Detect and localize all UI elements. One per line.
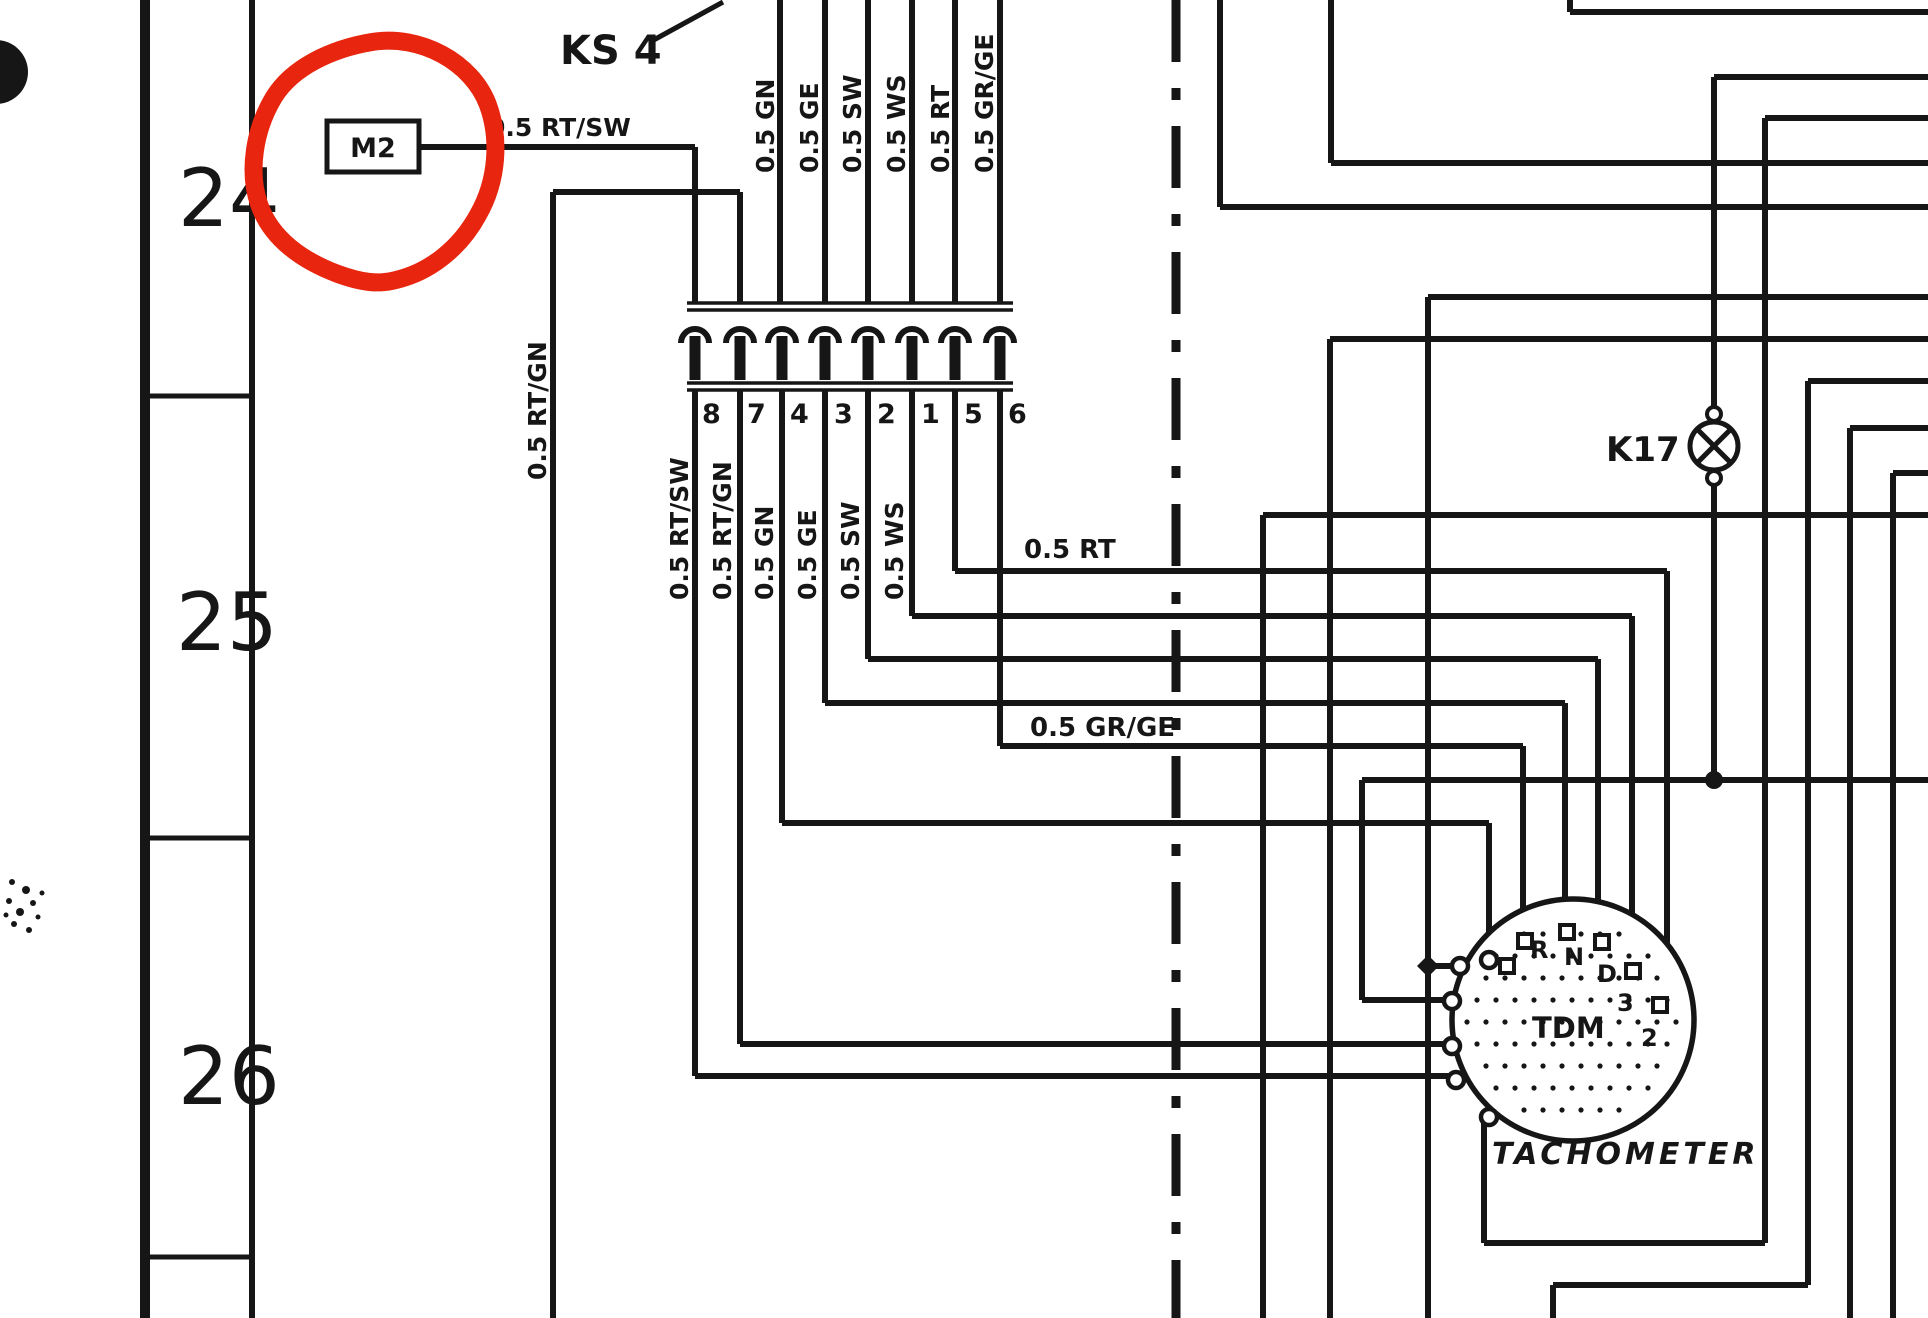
diagram-label-0-5-ws: 0.5 WS [880, 501, 909, 600]
tach-left-pin-4 [1481, 1109, 1497, 1125]
halftone-dot-78 [1521, 1107, 1526, 1112]
halftone-dot-77 [1645, 1085, 1650, 1090]
diagram-label-8: 8 [702, 399, 721, 430]
halftone-dot-74 [1588, 1085, 1593, 1090]
diagram-label-3: 3 [1617, 989, 1634, 1017]
halftone-dot-60 [1502, 1063, 1507, 1068]
scan-noise [4, 879, 45, 933]
halftone-dot-80 [1559, 1107, 1564, 1112]
halftone-dot-15 [1483, 975, 1488, 980]
diagram-label-0-5-ge: 0.5 GE [793, 509, 822, 600]
halftone-dot-37 [1483, 1019, 1488, 1024]
connector-ks4 [681, 303, 1014, 390]
inline-connector-diamond [1417, 955, 1439, 977]
lamp-terminal-top [1707, 407, 1721, 421]
connector-pin-bar-0 [690, 336, 701, 380]
halftone-dot-65 [1597, 1063, 1602, 1068]
halftone-dot-83 [1616, 1107, 1621, 1112]
halftone-dot-27 [1512, 997, 1517, 1002]
connector-pin-bar-7 [995, 336, 1006, 380]
halftone-dot-34 [1645, 997, 1650, 1002]
halftone-dot-56 [1626, 1041, 1631, 1046]
halftone-dot-82 [1597, 1107, 1602, 1112]
tach-left-pin-3 [1448, 1072, 1464, 1088]
component-m2: M2 [327, 121, 419, 172]
halftone-dot-58 [1664, 1041, 1669, 1046]
halftone-dot-36 [1464, 1019, 1469, 1024]
halftone-dot-79 [1540, 1107, 1545, 1112]
halftone-dot-45 [1635, 1019, 1640, 1024]
diagram-label-0-5-gr-ge: 0.5 GR/GE [1030, 713, 1175, 743]
halftone-dot-39 [1521, 1019, 1526, 1024]
halftone-dot-81 [1578, 1107, 1583, 1112]
halftone-dot-31 [1588, 997, 1593, 1002]
halftone-dot-61 [1521, 1063, 1526, 1068]
diagram-label-0-5-sw: 0.5 SW [838, 74, 867, 173]
connector-pin-bar-3 [820, 336, 831, 380]
diagram-label-25: 25 [176, 576, 278, 669]
diagram-label-0-5-rt-gn: 0.5 RT/GN [708, 461, 737, 600]
wiring-diagram-page: M2 KS 40.5 RT/SW0.5 RT0.5 GR/GEK170.5 GN… [0, 0, 1928, 1318]
diagram-label-0-5-rt-gn: 0.5 RT/GN [523, 341, 552, 480]
halftone-dot-22 [1616, 975, 1621, 980]
halftone-dot-72 [1550, 1085, 1555, 1090]
halftone-dot-73 [1569, 1085, 1574, 1090]
halftone-dot-55 [1607, 1041, 1612, 1046]
diagram-label-5: 5 [964, 399, 983, 430]
halftone-dot-13 [1626, 953, 1631, 958]
diagram-label-26: 26 [178, 1030, 280, 1123]
halftone-dot-32 [1607, 997, 1612, 1002]
diagram-label-0-5-ws: 0.5 WS [882, 74, 911, 173]
diagram-label-2: 2 [1641, 1024, 1658, 1052]
halftone-dot-5 [1616, 931, 1621, 936]
connector-pin-bar-1 [735, 336, 746, 380]
halftone-dot-19 [1559, 975, 1564, 980]
halftone-dot-64 [1578, 1063, 1583, 1068]
halftone-dot-24 [1654, 975, 1659, 980]
halftone-dot-12 [1607, 953, 1612, 958]
junction-dot [1705, 771, 1723, 789]
halftone-dot-25 [1474, 997, 1479, 1002]
tach-pin-square-2 [1560, 925, 1574, 939]
halftone-dot-71 [1531, 1085, 1536, 1090]
halftone-dot-18 [1540, 975, 1545, 980]
diagram-label-0-5-rt-sw: 0.5 RT/SW [665, 457, 694, 600]
diagram-label-r: R [1530, 936, 1548, 964]
halftone-dot-14 [1645, 953, 1650, 958]
tach-left-pin-2 [1444, 1038, 1460, 1054]
connector-pin-bar-5 [907, 336, 918, 380]
tach-pin-square-0 [1500, 959, 1514, 973]
diagram-label-0-5-rt: 0.5 RT [1024, 535, 1116, 565]
halftone-dot-3 [1578, 931, 1583, 936]
halftone-dot-29 [1550, 997, 1555, 1002]
diagram-label-0-5-rt: 0.5 RT [926, 85, 955, 173]
halftone-dot-16 [1502, 975, 1507, 980]
tach-left-pin-0 [1452, 958, 1468, 974]
halftone-dot-67 [1635, 1063, 1640, 1068]
diagram-label-tdm: TDM [1532, 1011, 1605, 1045]
halftone-dot-66 [1616, 1063, 1621, 1068]
halftone-dot-76 [1626, 1085, 1631, 1090]
diagram-label-0-5-ge: 0.5 GE [795, 82, 824, 173]
halftone-dot-48 [1474, 1041, 1479, 1046]
tach-pin-terminal-circle [1481, 952, 1497, 968]
halftone-dot-20 [1578, 975, 1583, 980]
diagram-label-0-5-gn: 0.5 GN [750, 506, 779, 600]
tach-pin-square-5 [1653, 998, 1667, 1012]
connector-pin-bar-2 [777, 336, 788, 380]
halftone-dot-9 [1550, 953, 1555, 958]
diagram-label-4: 4 [790, 399, 809, 430]
halftone-dot-75 [1607, 1085, 1612, 1090]
halftone-dot-49 [1493, 1041, 1498, 1046]
halftone-dot-59 [1483, 1063, 1488, 1068]
diagram-label-0-5-gn: 0.5 GN [751, 79, 780, 173]
lamp-terminal-bottom [1707, 471, 1721, 485]
halftone-dot-30 [1569, 997, 1574, 1002]
diagram-label-6: 6 [1008, 399, 1027, 430]
diagram-label-0-5-sw: 0.5 SW [836, 501, 865, 600]
halftone-dot-26 [1493, 997, 1498, 1002]
tach-pin-square-3 [1595, 935, 1609, 949]
halftone-dot-11 [1588, 953, 1593, 958]
diagram-label-7: 7 [747, 399, 766, 430]
component-k17-lamp [1690, 407, 1738, 485]
m2-label: M2 [350, 133, 396, 164]
halftone-dot-28 [1531, 997, 1536, 1002]
diagram-label-ks-4: KS 4 [560, 28, 662, 74]
halftone-dot-69 [1493, 1085, 1498, 1090]
halftone-dot-50 [1512, 1041, 1517, 1046]
scan-artifacts [0, 40, 45, 933]
halftone-dot-70 [1512, 1085, 1517, 1090]
connector-pin-bar-4 [863, 336, 874, 380]
scan-blob [0, 40, 28, 104]
diagram-label-0-5-gr-ge: 0.5 GR/GE [970, 34, 999, 174]
halftone-dot-62 [1540, 1063, 1545, 1068]
diagram-label-1: 1 [921, 399, 940, 430]
diagram-label-2: 2 [877, 399, 896, 430]
halftone-dot-63 [1559, 1063, 1564, 1068]
tach-pin-square-4 [1626, 964, 1640, 978]
diagram-label-0-5-rt-sw: 0.5 RT/SW [488, 113, 631, 142]
halftone-dot-17 [1521, 975, 1526, 980]
diagram-label-tachometer: TACHOMETER [1492, 1137, 1759, 1172]
diagram-label-d: D [1597, 960, 1617, 988]
wiring-diagram-canvas: M2 KS 40.5 RT/SW0.5 RT0.5 GR/GEK170.5 GN… [0, 0, 1928, 1318]
diagram-label-n: N [1564, 943, 1584, 971]
halftone-dot-47 [1673, 1019, 1678, 1024]
diagram-label-k17: K17 [1606, 430, 1680, 470]
diagram-label-3: 3 [834, 399, 853, 430]
halftone-dot-68 [1654, 1063, 1659, 1068]
connector-pin-bar-6 [950, 336, 961, 380]
tach-left-pin-1 [1444, 993, 1460, 1009]
halftone-dot-44 [1616, 1019, 1621, 1024]
halftone-dot-38 [1502, 1019, 1507, 1024]
